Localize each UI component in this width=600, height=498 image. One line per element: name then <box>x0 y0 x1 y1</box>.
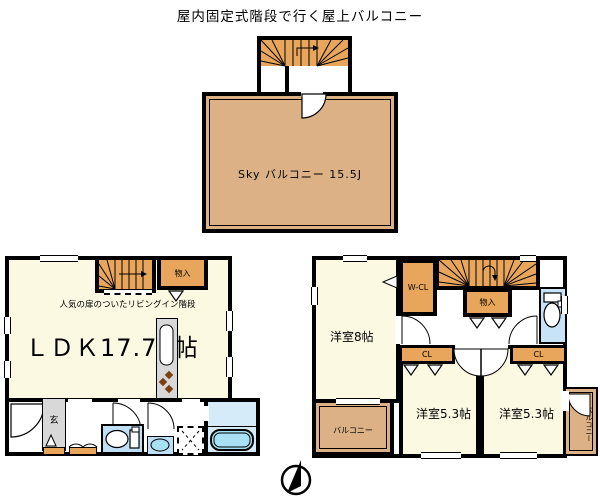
entrance-label: 玄 <box>43 413 65 426</box>
washbasin <box>147 436 174 455</box>
window <box>500 452 537 459</box>
living-stairs-note: 人気の扉のついたリビングイン階段 <box>30 298 225 310</box>
closet-door-mark-icon <box>470 318 484 329</box>
floor1-stairs <box>95 256 156 293</box>
floor1-stair-landing <box>104 290 152 295</box>
door-arc-icon <box>568 392 592 418</box>
door-swing-mark-icon <box>45 435 57 447</box>
floor1-bathroom <box>204 398 260 456</box>
window <box>343 255 367 262</box>
window <box>4 317 11 334</box>
stairs-icon <box>99 260 152 289</box>
window <box>421 452 461 459</box>
page-title: 屋内固定式階段で行く屋上バルコニー <box>0 5 600 25</box>
double-door-arc-icon <box>453 348 511 380</box>
window <box>4 361 11 378</box>
floor2-side-balcony: バルコニー <box>564 387 598 456</box>
window <box>520 255 536 262</box>
bathroom-door-gap <box>201 406 209 421</box>
door-opening <box>182 399 200 405</box>
floor2-storage: 物入 <box>463 288 512 317</box>
entrance-step-mat <box>69 447 97 455</box>
cl-label: CL <box>533 350 543 359</box>
bathtub-icon <box>208 402 256 452</box>
washbasin-icon <box>148 437 172 453</box>
entrance-hall: 玄 <box>42 398 66 451</box>
stove-icon <box>159 371 173 393</box>
balcony-door-gap <box>561 391 569 411</box>
floor1-toilet-room <box>101 424 144 454</box>
washing-machine <box>177 426 204 455</box>
stairs-icon <box>261 40 348 92</box>
closet-door-mark-icon <box>428 365 442 376</box>
room53-right-label: 洋室5.3帖 <box>499 405 554 422</box>
closet-door-mark-icon <box>544 365 558 376</box>
floor2-balcony: バルコニー <box>312 399 394 456</box>
door-arc-icon <box>147 403 177 433</box>
closet-door-mark-icon <box>492 318 506 329</box>
wcl-label: W-CL <box>408 283 429 292</box>
compass-icon <box>278 458 316 498</box>
roof-stairwell <box>257 36 352 96</box>
closet-door-arcs-icon <box>68 424 98 448</box>
washing-machine-icon <box>179 428 202 453</box>
floorplan-canvas: 屋内固定式階段で行く屋上バルコニー Sky バルコニー 15.5J <box>0 0 600 498</box>
floor1-storage: 物入 <box>157 256 208 290</box>
storage-label: 物入 <box>480 297 496 308</box>
stairs-icon <box>439 260 536 286</box>
door-arc-icon <box>507 316 539 348</box>
room53-left-label: 洋室5.3帖 <box>416 405 471 422</box>
door-arc-icon <box>401 316 433 348</box>
window <box>561 296 568 314</box>
window <box>40 255 78 262</box>
balcony-label: バルコニー <box>316 425 390 436</box>
door-opening <box>68 399 92 405</box>
room8-label: 洋室8帖 <box>330 328 374 345</box>
cl-label: CL <box>422 350 432 359</box>
roof-door-arc-icon <box>298 94 328 124</box>
storage-label: 物入 <box>175 268 191 279</box>
window <box>226 357 233 377</box>
window <box>311 287 318 305</box>
door-swing-mark-icon <box>383 276 398 289</box>
sky-balcony-label: Sky バルコニー 15.5J <box>206 166 394 182</box>
entrance-step-mat <box>43 447 65 455</box>
toilet-icon <box>103 426 142 452</box>
window <box>336 398 380 405</box>
kitchen-sink-icon <box>160 325 173 365</box>
closet-door-mark-icon <box>404 365 418 376</box>
closet-door-mark-icon <box>518 365 532 376</box>
floor2-walk-in-closet: W-CL <box>399 259 437 316</box>
kitchen-counter <box>156 318 178 399</box>
window <box>226 311 233 331</box>
